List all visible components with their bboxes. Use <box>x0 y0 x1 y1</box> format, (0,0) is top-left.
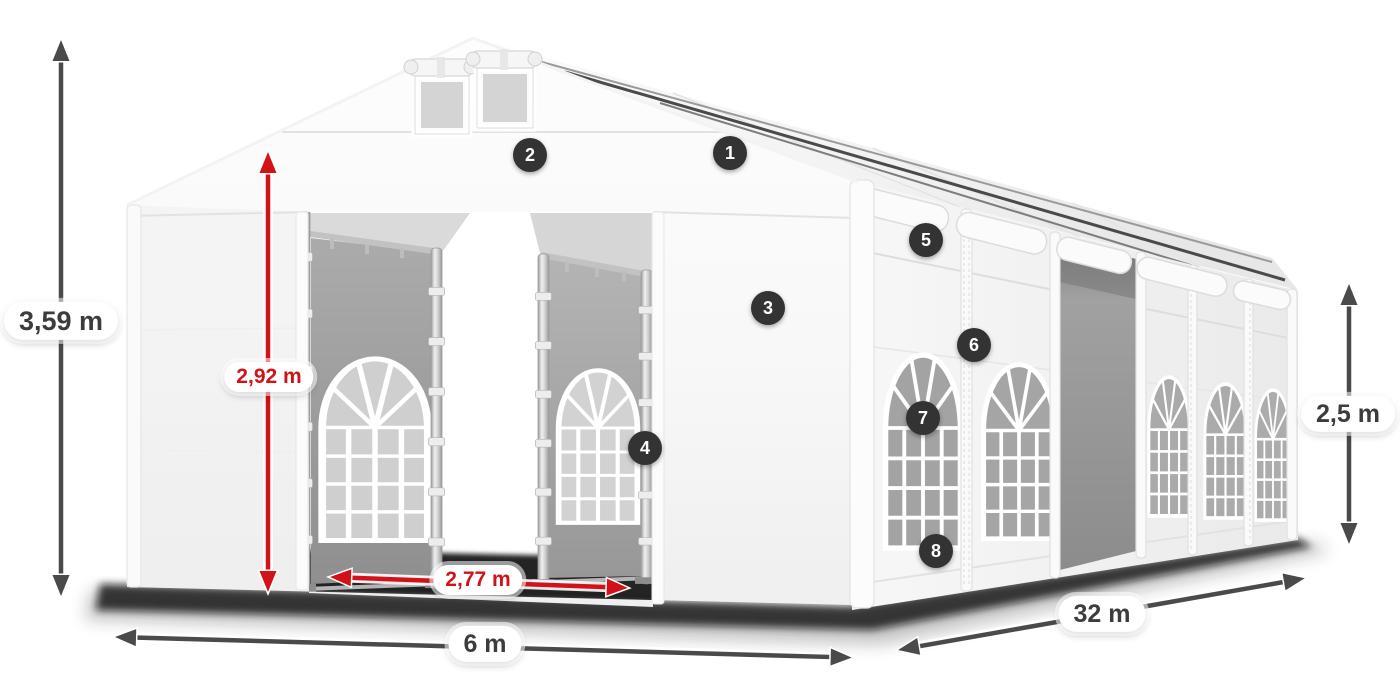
feature-marker-2: 2 <box>513 138 547 172</box>
feature-marker-4: 4 <box>628 431 662 465</box>
feature-marker-1: 1 <box>713 136 747 170</box>
side-window <box>1205 384 1246 518</box>
dimension-label-gable-width: 6 m <box>448 626 521 662</box>
side-window <box>886 355 961 548</box>
feature-marker-7: 7 <box>906 401 940 435</box>
feature-marker-8: 8 <box>919 534 953 568</box>
dimension-label-entrance-height: 2,92 m <box>224 362 313 392</box>
dimension-label-entrance-width: 2,77 m <box>433 565 522 595</box>
feature-marker-5: 5 <box>909 223 943 257</box>
gable-vent-window <box>466 49 542 128</box>
tent-dimension-diagram: 3,59 m 2,92 m 2,77 m 6 m 32 m 2,5 m 1 2 … <box>0 0 1400 700</box>
front-right-corner-sleeve <box>850 180 874 608</box>
front-left-corner-sleeve <box>127 205 141 587</box>
dimension-label-length: 32 m <box>1059 596 1146 632</box>
entrance-opening-interior <box>293 208 658 602</box>
tent-illustration <box>0 0 1400 700</box>
dimension-label-total-height: 3,59 m <box>4 302 118 340</box>
side-window <box>1256 390 1291 520</box>
side-window <box>1149 377 1189 516</box>
feature-marker-6: 6 <box>957 328 991 362</box>
gable-vent-window <box>404 57 478 134</box>
side-window <box>983 365 1054 539</box>
dimension-label-side-height: 2,5 m <box>1301 396 1395 432</box>
feature-marker-3: 3 <box>751 291 785 325</box>
